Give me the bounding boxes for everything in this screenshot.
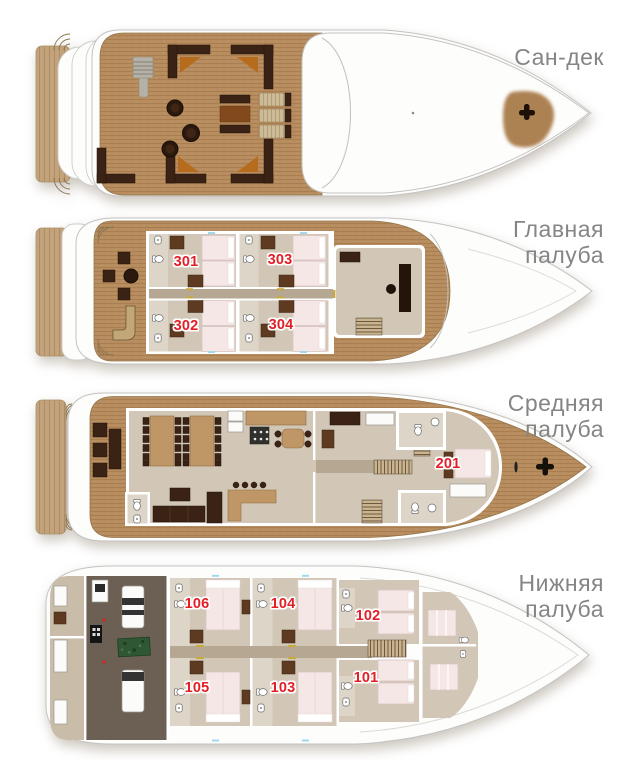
toilet-icon (412, 503, 419, 514)
sink-icon (431, 418, 439, 426)
stairs-icon (374, 460, 412, 474)
cabin-201-bathroom (396, 410, 446, 450)
toilet-icon (415, 424, 422, 435)
cabin-104-bed (298, 580, 332, 630)
toilet-icon (341, 605, 352, 612)
middle-deck-plan (36, 393, 592, 541)
breakfast-table (282, 429, 304, 448)
sink-icon (258, 704, 264, 712)
helm-console (399, 264, 411, 312)
sink-icon (246, 334, 252, 342)
cabin-303-beds (293, 236, 326, 287)
toilet-icon (256, 689, 267, 696)
toilet-icon (341, 683, 352, 690)
stairs-icon (368, 640, 406, 657)
aft-deck-seating (93, 423, 121, 477)
engine-starboard (122, 670, 144, 712)
engine-port (122, 586, 144, 628)
corridor (170, 646, 372, 658)
cabin-106-bed (206, 580, 240, 630)
toilet-icon (459, 637, 468, 643)
main-deck-plan (36, 218, 592, 364)
sink-icon (176, 704, 182, 712)
switchboard (90, 625, 102, 643)
wheelhouse (333, 245, 425, 338)
stairs-icon (356, 318, 382, 335)
deck-plans: Сан-дек Главная палуба Средняя палуба Ни… (0, 0, 640, 760)
toilet-icon (243, 256, 254, 263)
toilet-icon (174, 689, 185, 696)
captain-chair (386, 284, 396, 294)
corridor (149, 289, 365, 299)
mast-icon (514, 462, 517, 473)
lower-deck-plan (46, 566, 589, 744)
sink-icon (246, 236, 252, 244)
sink-icon (176, 584, 182, 592)
forward-wc (398, 490, 446, 526)
generator-green (118, 637, 151, 657)
sun-deck-plan (36, 30, 591, 196)
sink-icon (428, 504, 436, 512)
sink-icon (258, 584, 264, 592)
sink-icon (155, 334, 161, 342)
sink-icon (343, 590, 349, 598)
sun-lounger-icon (259, 93, 291, 138)
toilet-icon (134, 499, 141, 510)
toilet-icon (152, 256, 163, 263)
cabin-301-beds (202, 236, 235, 287)
sink-icon (155, 236, 161, 244)
cabin-105-bed (206, 672, 240, 722)
deck-plans-drawing (0, 0, 640, 760)
cabin-103-bed (298, 672, 332, 722)
bar-counter (220, 95, 250, 133)
swim-platform (36, 400, 66, 534)
engine-room (84, 576, 170, 740)
toilet-icon (243, 315, 254, 322)
cabin-201 (444, 449, 491, 497)
stove-icon (250, 427, 269, 444)
stairs-icon (362, 500, 382, 523)
toilet-icon (256, 601, 267, 608)
crew-quarters (50, 576, 84, 740)
sink-icon (134, 515, 140, 523)
sink-icon (460, 651, 465, 658)
guest-cabin-block (146, 231, 365, 354)
toilet-icon (152, 315, 163, 322)
sink-icon (343, 698, 349, 706)
day-head-wc (125, 492, 150, 526)
toilet-icon (174, 601, 185, 608)
